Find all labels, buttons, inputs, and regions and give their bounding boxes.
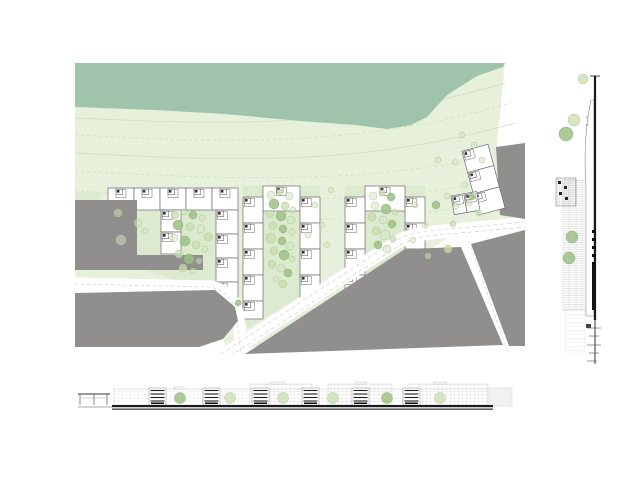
- tree-symbol: [328, 187, 334, 193]
- tree-symbol: [379, 190, 385, 196]
- tree-symbol: [390, 236, 396, 242]
- tree-symbol: [410, 237, 416, 243]
- tree-symbol: [278, 393, 289, 404]
- tree-symbol: [368, 213, 376, 221]
- tree-symbol: [578, 74, 588, 84]
- tree-symbol: [170, 234, 178, 242]
- tree-symbol: [273, 276, 279, 282]
- tree-symbol: [189, 211, 197, 219]
- tree-symbol: [279, 225, 287, 233]
- tree-symbol: [432, 201, 440, 209]
- tree-symbol: [266, 210, 274, 218]
- tree-symbol: [469, 194, 475, 200]
- tree-symbol: [435, 157, 441, 163]
- tree-symbol: [173, 220, 183, 230]
- tree-symbol: [180, 236, 190, 246]
- tree-symbol: [374, 241, 382, 249]
- paved-plot: [75, 290, 238, 347]
- tree-symbol: [476, 210, 482, 216]
- tree-symbol: [559, 127, 573, 141]
- tree-symbol: [197, 225, 205, 233]
- tree-symbol: [175, 393, 186, 404]
- tree-symbol: [382, 393, 393, 404]
- tree-symbol: [479, 157, 485, 163]
- tree-symbol: [422, 222, 428, 228]
- tree-symbol: [324, 242, 330, 248]
- tree-symbol: [319, 222, 325, 228]
- tree-symbol: [199, 215, 205, 221]
- tree-symbol: [269, 199, 279, 209]
- tree-symbol: [235, 300, 241, 306]
- tree-symbol: [279, 280, 287, 288]
- tree-symbol: [279, 250, 289, 260]
- tree-symbol: [379, 216, 387, 224]
- tree-symbol: [286, 242, 294, 250]
- tree-symbol: [116, 235, 126, 245]
- tree-symbol: [175, 250, 183, 258]
- tree-symbol: [381, 204, 391, 214]
- tree-symbol: [204, 233, 212, 241]
- tree-symbol: [371, 202, 379, 210]
- tree-symbol: [266, 233, 276, 243]
- tree-symbol: [278, 237, 286, 245]
- tree-symbol: [281, 202, 289, 210]
- tree-symbol: [290, 207, 296, 213]
- tree-symbol: [289, 229, 295, 235]
- tree-symbol: [566, 231, 578, 243]
- tree-symbol: [285, 192, 293, 200]
- bottom-elevation-content: [78, 382, 512, 410]
- tree-symbol: [425, 253, 431, 259]
- tree-symbol: [312, 202, 318, 208]
- tree-symbol: [287, 216, 295, 224]
- tree-symbol: [305, 232, 311, 238]
- tree-symbol: [184, 254, 194, 264]
- tree-symbol: [171, 211, 179, 219]
- tree-symbol: [269, 222, 277, 230]
- tree-symbol: [268, 260, 276, 268]
- tree-symbol: [192, 241, 200, 249]
- tree-symbol: [114, 209, 122, 217]
- tree-symbol: [388, 220, 396, 228]
- side-elevation-drawing: [553, 58, 603, 368]
- tree-symbol: [277, 264, 285, 272]
- tree-symbol: [181, 209, 187, 215]
- tree-symbol: [453, 203, 459, 209]
- tree-symbol: [202, 246, 208, 252]
- tree-symbol: [380, 230, 390, 240]
- tree-symbol: [459, 132, 465, 138]
- tree-symbol: [444, 245, 452, 253]
- tree-symbol: [276, 211, 286, 221]
- tree-symbol: [392, 209, 398, 215]
- site-plan-sheet: [0, 0, 620, 480]
- tree-symbol: [471, 142, 477, 148]
- tree-symbol: [387, 193, 395, 201]
- tree-symbol: [179, 264, 187, 272]
- tree-symbol: [196, 258, 202, 264]
- tree-symbol: [289, 256, 295, 262]
- tree-symbol: [190, 268, 196, 274]
- tree-symbol: [444, 193, 450, 199]
- site-plan-drawing: [75, 63, 525, 355]
- tree-symbol: [568, 114, 580, 126]
- tree-symbol: [450, 221, 456, 227]
- tree-symbol: [563, 252, 575, 264]
- tree-symbol: [452, 159, 458, 165]
- tree-symbol: [372, 227, 380, 235]
- tree-symbol: [277, 189, 283, 195]
- side-elevation-content: [556, 74, 601, 364]
- tree-symbol: [270, 247, 278, 255]
- tree-symbol: [369, 192, 377, 200]
- tree-symbol: [383, 245, 391, 253]
- paved-plot: [75, 200, 137, 255]
- tree-symbol: [142, 228, 148, 234]
- tree-symbol: [462, 182, 468, 188]
- bottom-elevation-drawing: [74, 381, 514, 416]
- tree-symbol: [412, 202, 418, 208]
- tree-symbol: [186, 223, 194, 231]
- tree-symbol: [134, 219, 142, 227]
- tree-symbol: [284, 269, 292, 277]
- tree-symbol: [435, 393, 446, 404]
- tree-symbol: [267, 191, 275, 199]
- tree-symbol: [466, 200, 472, 206]
- tree-symbol: [225, 393, 236, 404]
- tree-symbol: [328, 393, 339, 404]
